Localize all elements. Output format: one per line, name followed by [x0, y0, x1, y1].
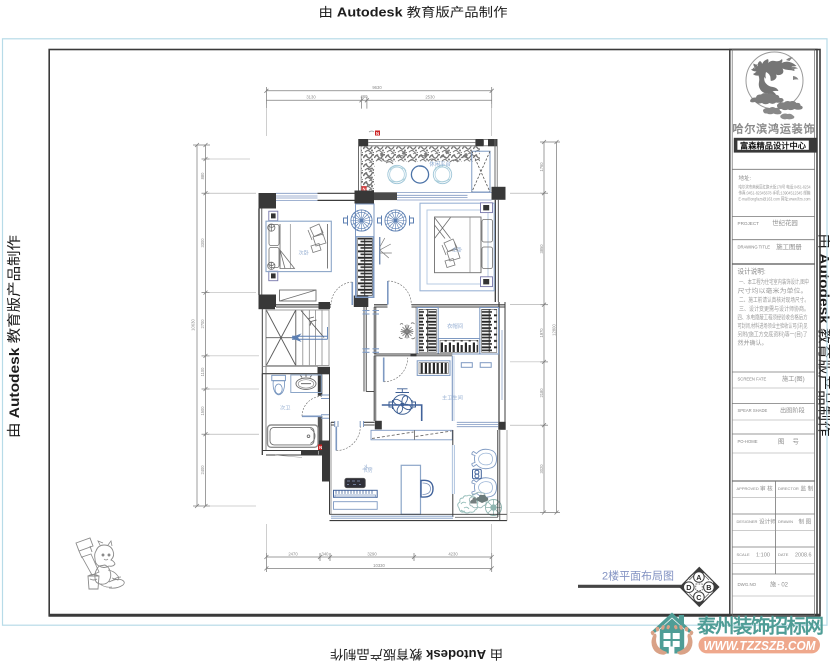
svg-text:三、设计变更需与设计师协商。: 三、设计变更需与设计师协商。 — [739, 305, 809, 313]
svg-text:哈尔滨鸿运装饰: 哈尔滨鸿运装饰 — [733, 122, 815, 136]
svg-text:四、水电隐蔽工程须经验收合格后方: 四、水电隐蔽工程须经验收合格后方 — [738, 314, 808, 322]
svg-text:次卧: 次卧 — [299, 249, 309, 257]
svg-text:施 - 02: 施 - 02 — [770, 581, 789, 589]
svg-text:施工(图): 施工(图) — [782, 375, 805, 383]
svg-text:PO-HOME: PO-HOME — [738, 439, 758, 444]
svg-text:DIRECTOR: DIRECTOR — [778, 486, 799, 491]
svg-text:尺寸均以毫米为单位。: 尺寸均以毫米为单位。 — [738, 287, 808, 295]
svg-text:由 Autodesk 教育版产品制作: 由 Autodesk 教育版产品制作 — [329, 647, 503, 662]
svg-text:3850: 3850 — [539, 244, 544, 254]
svg-text:1760: 1760 — [539, 162, 544, 172]
svg-text:地址:: 地址: — [739, 174, 752, 182]
svg-text:施工图册: 施工图册 — [776, 242, 802, 251]
svg-text:12800: 12800 — [552, 324, 557, 336]
svg-text:由 Autodesk 教育版产品制作: 由 Autodesk 教育版产品制作 — [6, 235, 22, 438]
svg-text:APPROVED: APPROVED — [737, 486, 759, 491]
svg-text:休闲平台: 休闲平台 — [429, 160, 451, 168]
svg-text:DRAWN: DRAWN — [778, 519, 793, 524]
svg-text:4230: 4230 — [448, 551, 458, 556]
svg-text:2180: 2180 — [539, 388, 544, 398]
svg-text:3290: 3290 — [367, 551, 377, 556]
svg-text:1970: 1970 — [539, 328, 544, 338]
svg-text:9630: 9630 — [372, 85, 382, 90]
svg-text:世纪花园: 世纪花园 — [772, 218, 798, 227]
svg-text:10630: 10630 — [191, 319, 196, 331]
svg-text:DRAWING TITLE: DRAWING TITLE — [738, 245, 771, 250]
svg-text:出图阶段: 出图阶段 — [780, 407, 805, 415]
svg-text:B: B — [706, 583, 711, 592]
svg-text:C: C — [696, 593, 701, 602]
svg-text:主卫生间: 主卫生间 — [442, 394, 463, 402]
svg-text:可封闭,材料进场须业主验收认可(详)见: 可封闭,材料进场须业主验收认可(详)见 — [738, 322, 808, 330]
svg-text:340: 340 — [322, 551, 330, 556]
svg-text:2008.6: 2008.6 — [795, 553, 812, 559]
svg-text:富森精品设计中心: 富森精品设计中心 — [740, 141, 807, 151]
svg-text:主卧: 主卧 — [452, 246, 462, 254]
svg-text:460: 460 — [361, 94, 369, 99]
svg-text:E-mail:longfazs@163.com 网址:www: E-mail:longfazs@163.com 网址:www.lfzs.com — [739, 196, 811, 203]
svg-text:设计说明:: 设计说明: — [738, 267, 766, 276]
svg-text:监 制: 监 制 — [801, 485, 814, 493]
svg-text:WWW.TZZSZB.COM: WWW.TZZSZB.COM — [704, 639, 817, 653]
svg-text:另附(施工方交底资料)等一(目)了: 另附(施工方交底资料)等一(目)了 — [738, 331, 808, 339]
svg-text:1100: 1100 — [200, 367, 205, 377]
svg-text:设计师: 设计师 — [759, 518, 776, 526]
svg-text:然并确认。: 然并确认。 — [738, 339, 768, 347]
svg-text:3020: 3020 — [539, 464, 544, 474]
svg-text:1500: 1500 — [200, 406, 205, 416]
svg-text:2700: 2700 — [200, 319, 205, 329]
svg-text:2530: 2530 — [425, 95, 435, 100]
svg-text:图 号: 图 号 — [778, 438, 799, 446]
svg-text:880: 880 — [200, 172, 205, 180]
svg-text:一、本工程为住宅室内装饰设计,图中: 一、本工程为住宅室内装饰设计,图中 — [739, 278, 809, 286]
svg-text:PROJECT: PROJECT — [738, 221, 760, 226]
svg-text:DESIGNER: DESIGNER — [737, 519, 758, 524]
svg-text:SCREEN FATE: SCREEN FATE — [738, 377, 767, 382]
svg-text:审 核: 审 核 — [760, 485, 773, 493]
svg-text:次卫: 次卫 — [280, 404, 290, 412]
svg-text:A: A — [696, 573, 701, 582]
svg-text:DWG.NO: DWG.NO — [738, 582, 757, 587]
svg-text:DATE: DATE — [778, 552, 789, 557]
svg-text:N: N — [319, 445, 322, 450]
svg-text:由 Autodesk 教育版产品制作: 由 Autodesk 教育版产品制作 — [319, 5, 509, 20]
svg-text:10330: 10330 — [373, 563, 385, 568]
svg-text:3300: 3300 — [200, 238, 205, 248]
svg-text:N: N — [376, 131, 379, 136]
svg-text:制 图: 制 图 — [799, 518, 812, 526]
svg-text:书房: 书房 — [362, 466, 373, 474]
svg-text:1:100: 1:100 — [756, 553, 770, 559]
svg-text:SPEAR SHADE: SPEAR SHADE — [738, 408, 768, 413]
svg-text:哈尔滨市南岗区红旗大街178号 电话:0451-8234: 哈尔滨市南岗区红旗大街178号 电话:0451-8234 — [739, 184, 811, 191]
svg-text:SCALE: SCALE — [737, 552, 750, 557]
svg-text:传真:0451-82345678 手机:1390451234: 传真:0451-82345678 手机:13904512345 邮箱 — [739, 190, 811, 197]
svg-text:3130: 3130 — [306, 95, 316, 100]
svg-text:2470: 2470 — [288, 551, 298, 556]
svg-text:二、施工前请认真核对现场尺寸。: 二、施工前请认真核对现场尺寸。 — [739, 296, 809, 304]
svg-text:衣帽间: 衣帽间 — [447, 322, 463, 330]
svg-text:D: D — [686, 583, 691, 592]
svg-text:泰州装饰招标网: 泰州装饰招标网 — [696, 615, 823, 638]
svg-text:2400: 2400 — [200, 465, 205, 475]
svg-text:由 Autodesk 教育版产品制作: 由 Autodesk 教育版产品制作 — [817, 234, 830, 437]
svg-text:2楼平面布局图: 2楼平面布局图 — [602, 569, 674, 583]
